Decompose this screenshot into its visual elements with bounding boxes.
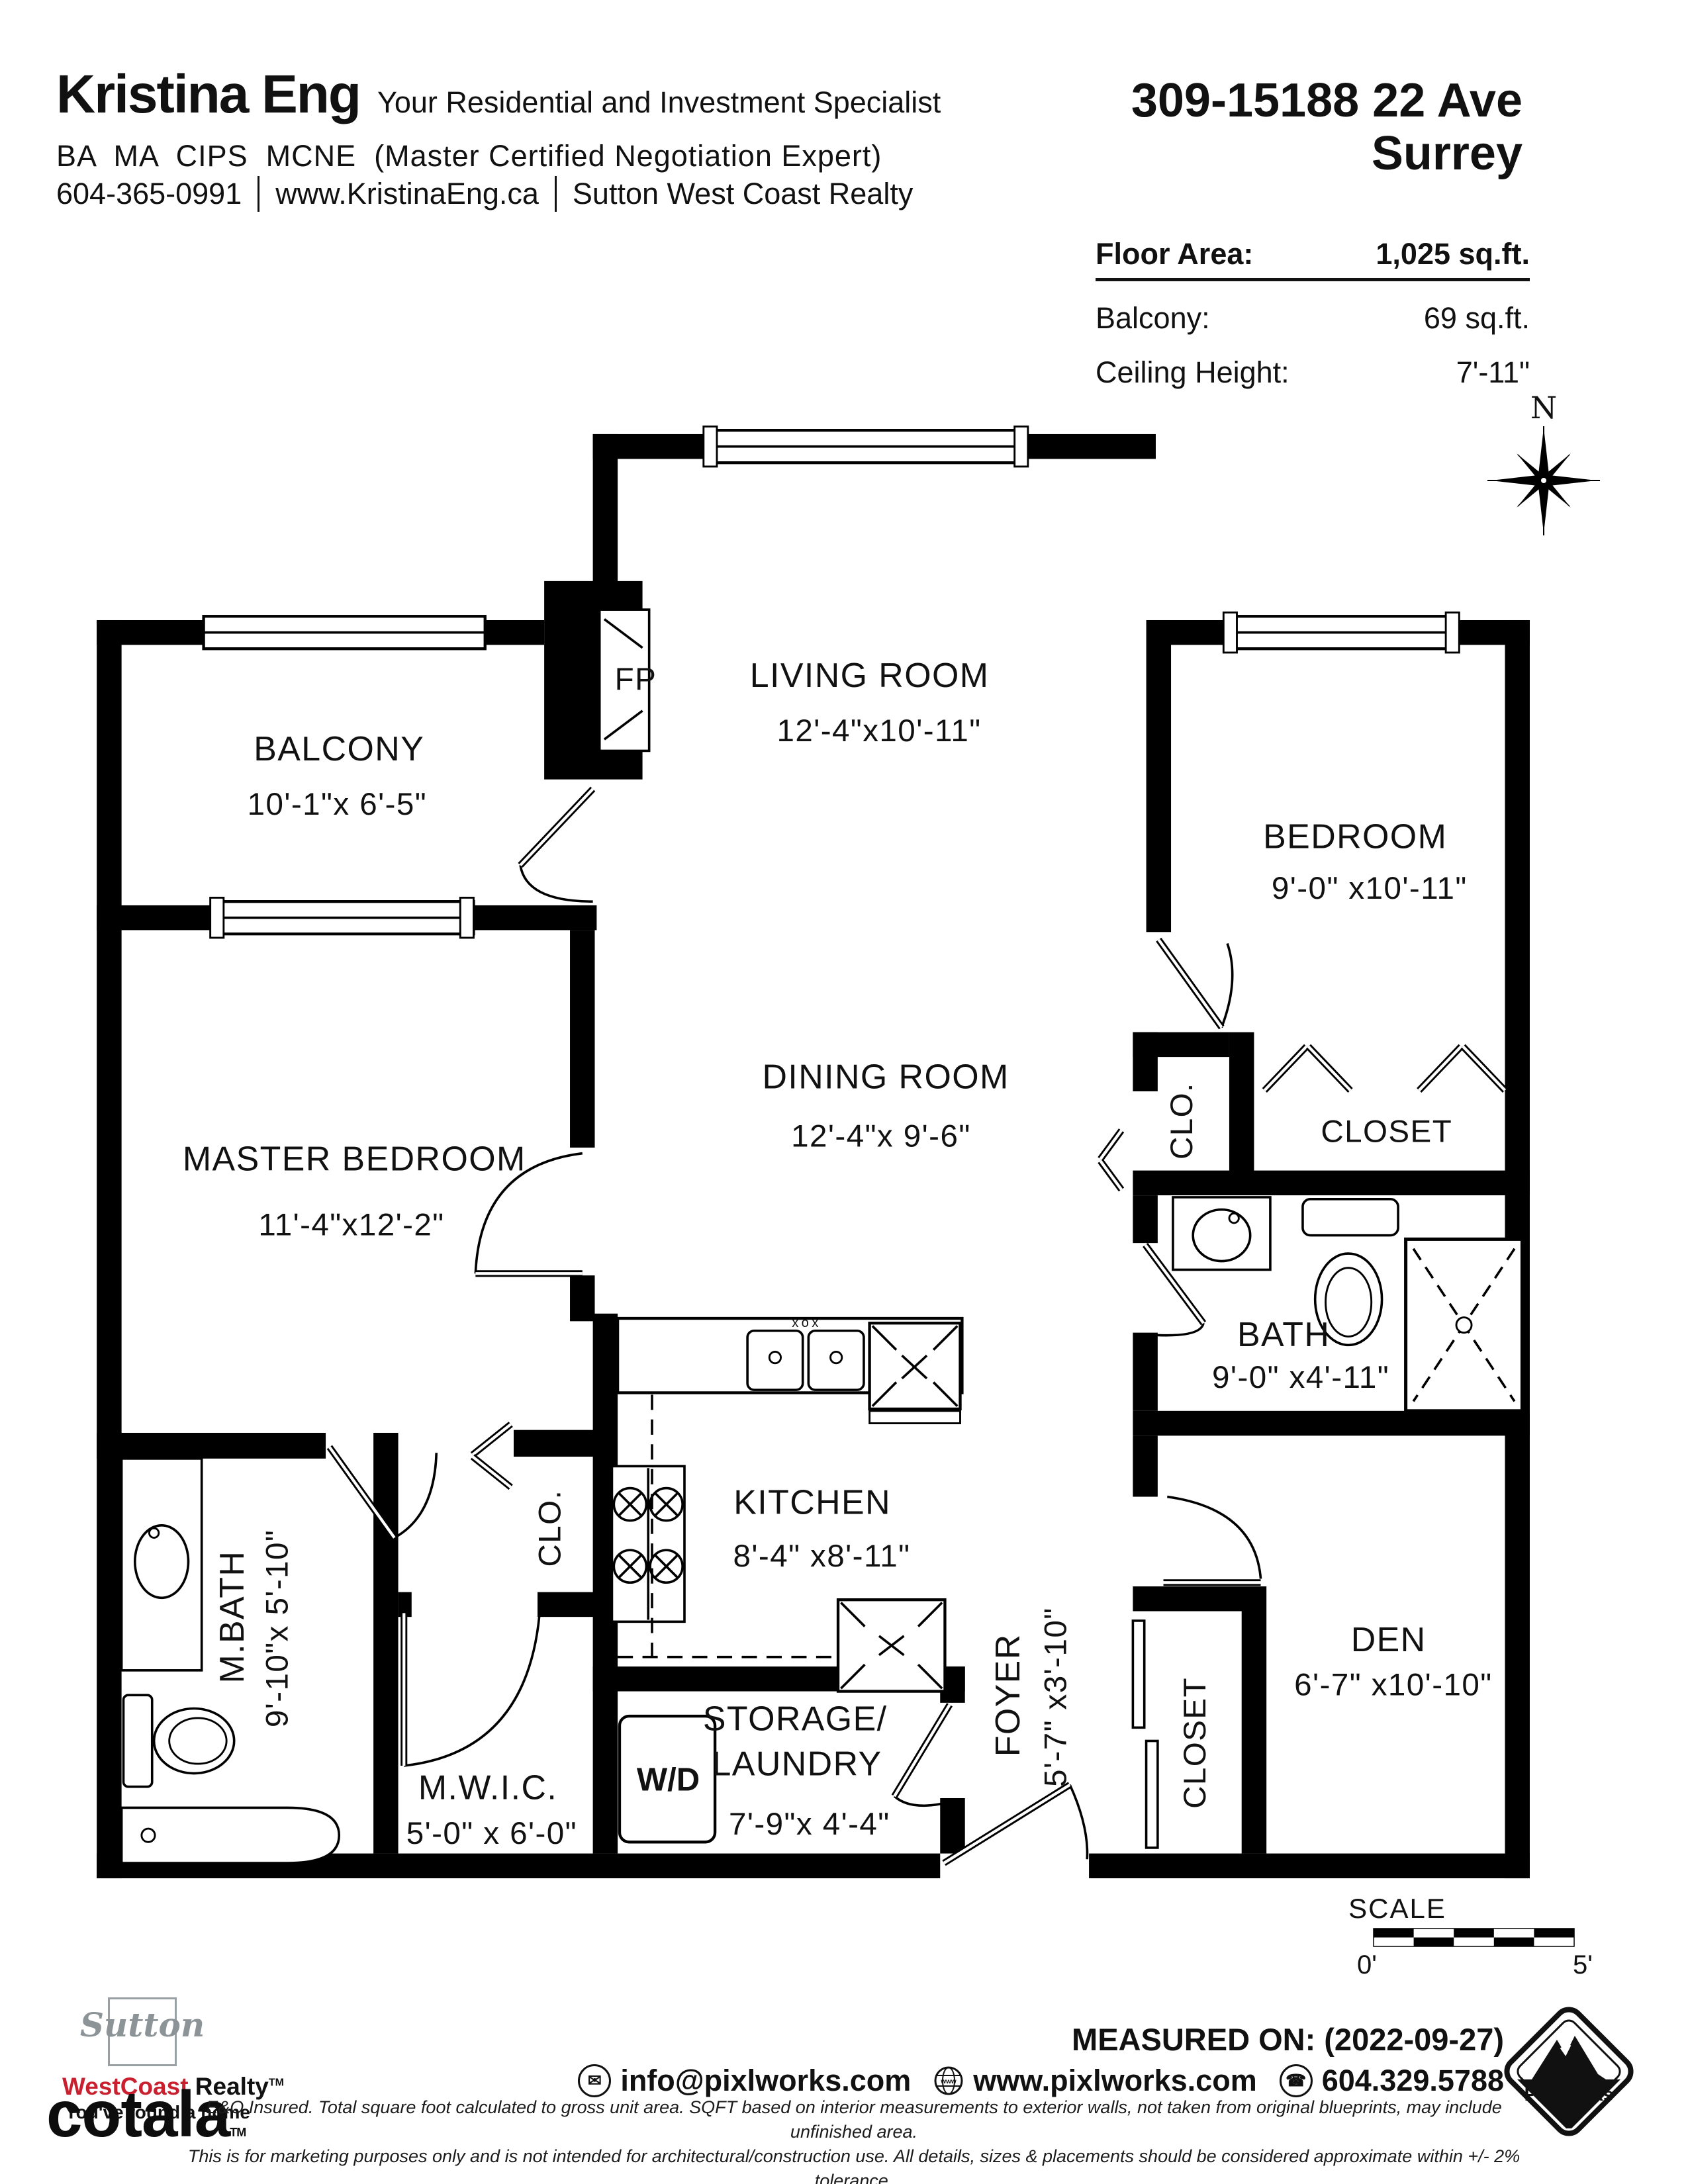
door-den	[1164, 1497, 1261, 1583]
door-entry	[944, 1785, 1087, 1863]
bifold-bedroom-closet-right	[1419, 1046, 1505, 1090]
address-line1: 309-15188 22 Ave	[1039, 74, 1523, 127]
window-living	[704, 426, 1028, 467]
room-dims-foyer: 5'-7" x3'-10"	[1039, 1607, 1074, 1787]
pixlworks-logo-text: PixlWorks	[1524, 2084, 1614, 2105]
agent-brokerage: Sutton West Coast Realty	[573, 177, 913, 211]
room-label-bedroom: BEDROOM	[1263, 817, 1447, 855]
room-dims-bedroom: 9'-0" x10'-11"	[1272, 871, 1468, 906]
disclaimer-line2: This is for marketing purposes only and …	[172, 2144, 1536, 2184]
stat-value: 7'-11"	[1456, 355, 1530, 390]
room-label-bath: BATH	[1237, 1315, 1330, 1353]
room-label-dining-closet: CLO.	[1164, 1082, 1199, 1160]
bifold-bedroom-closet-left	[1264, 1046, 1350, 1090]
door-balcony	[520, 789, 593, 901]
window-bedroom	[1223, 612, 1459, 653]
room-dims-mwic: 5'-0" x 6'-0"	[406, 1816, 577, 1851]
room-label-dining: DINING ROOM	[762, 1058, 1009, 1096]
bifold-hall-closet	[473, 1424, 511, 1487]
contact-phone-text[interactable]: 604.329.5788	[1322, 2064, 1504, 2098]
room-dims-master: 11'-4"x12'-2"	[258, 1208, 444, 1243]
stat-label: Ceiling Height:	[1096, 355, 1289, 390]
room-label-foyer-closet: CLOSET	[1178, 1677, 1213, 1809]
room-label-mwic: M.W.I.C.	[418, 1768, 557, 1806]
measured-on: MEASURED ON: (2022-09-27)	[1046, 2021, 1504, 2058]
contact-phone[interactable]: ☎ 604.329.5788	[1280, 2064, 1504, 2098]
room-label-mbath: M.BATH	[212, 1551, 251, 1684]
burner	[614, 1488, 646, 1521]
room-label-den: DEN	[1351, 1620, 1427, 1659]
burner	[614, 1550, 646, 1582]
room-label-living: LIVING ROOM	[750, 656, 990, 694]
room-label-bedroom-closet: CLOSET	[1321, 1114, 1452, 1149]
room-label-balcony: BALCONY	[254, 729, 424, 768]
room-dims-bath: 9'-0" x4'-11"	[1212, 1360, 1389, 1395]
fridge	[870, 1323, 961, 1423]
mbath-toilet	[124, 1695, 234, 1786]
email-icon: ✉	[578, 2064, 611, 2097]
bath-shower	[1406, 1239, 1523, 1410]
stat-value: 69 sq.ft.	[1424, 301, 1530, 336]
room-dims-mbath: 9'-10"x 5'-10"	[259, 1529, 295, 1727]
contact-email[interactable]: ✉ info@pixlworks.com	[578, 2064, 911, 2098]
disclaimer-line1: E&O Insured. Total square foot calculate…	[172, 2095, 1536, 2144]
room-dims-balcony: 10'-1"x 6'-5"	[248, 787, 428, 822]
divider-bar	[258, 176, 259, 212]
phone-icon: ☎	[1280, 2064, 1313, 2097]
agent-tagline: Your Residential and Investment Speciali…	[377, 85, 941, 120]
bifold-dining-closet	[1100, 1130, 1121, 1189]
agent-phone: 604-365-0991	[56, 177, 242, 211]
scale-bar: SCALE 0' 5'	[1314, 1890, 1605, 1983]
scale-title: SCALE	[1348, 1893, 1446, 1924]
room-label-master: MASTER BEDROOM	[183, 1140, 526, 1178]
header-agent: Kristina Eng Your Residential and Invest…	[56, 64, 941, 126]
agent-credentials: BA MA CIPS MCNE (Master Certified Negoti…	[56, 139, 882, 173]
door-mwic	[404, 1613, 539, 1766]
listing-address: 309-15188 22 Ave Surrey	[1039, 74, 1523, 180]
address-line2: Surrey	[1039, 127, 1523, 180]
room-dims-kitchen: 8'-4" x8'-11"	[733, 1539, 911, 1574]
sutton-tm: TM	[269, 2077, 284, 2089]
agent-contact-row: 604-365-0991 www.KristinaEng.ca Sutton W…	[56, 176, 913, 212]
pixlworks-logo-stars: ★ ★ ★	[1554, 2109, 1583, 2120]
washer-dryer-label: W/D	[637, 1762, 700, 1797]
pixlworks-contact-row: ✉ info@pixlworks.com www www.pixlworks.c…	[655, 2064, 1504, 2098]
pixlworks-logo: PixlWorks ★ ★ ★	[1497, 2000, 1640, 2143]
room-label-storage-1: STORAGE/	[703, 1700, 888, 1738]
floor-plan-page: Kristina Eng Your Residential and Invest…	[0, 0, 1688, 2184]
contact-website[interactable]: www www.pixlworks.com	[933, 2064, 1256, 2098]
scale-end: 5'	[1573, 1950, 1593, 1979]
fireplace-label: FP	[615, 662, 657, 697]
listing-stats: Floor Area: 1,025 sq.ft. Balcony: 69 sq.…	[1096, 237, 1530, 390]
sliding-doors-foyer-closet	[1133, 1621, 1157, 1848]
stat-value: 1,025 sq.ft.	[1376, 237, 1530, 271]
room-dims-living: 12'-4"x10'-11"	[776, 713, 981, 749]
floor-plan-drawing: LIVING ROOM 12'-4"x10'-11" BALCONY 10'-1…	[79, 417, 1549, 1895]
door-storage	[894, 1705, 950, 1806]
contact-website-text[interactable]: www.pixlworks.com	[973, 2064, 1256, 2098]
room-dims-dining: 12'-4"x 9'-6"	[791, 1119, 971, 1154]
pantry	[838, 1600, 945, 1691]
contact-email-text[interactable]: info@pixlworks.com	[620, 2064, 911, 2098]
mbath-tub	[122, 1807, 340, 1863]
room-dims-storage: 7'-9"x 4'-4"	[729, 1807, 890, 1842]
burner	[650, 1550, 682, 1582]
globe-icon: www	[933, 2066, 964, 2096]
agent-website[interactable]: www.KristinaEng.ca	[275, 177, 539, 211]
agent-name: Kristina Eng	[56, 64, 360, 126]
room-label-storage-2: LAUNDRY	[712, 1744, 882, 1782]
burner	[650, 1488, 682, 1521]
stat-ceiling: Ceiling Height: 7'-11"	[1096, 355, 1530, 390]
window-balcony-rail	[204, 616, 485, 649]
stat-balcony: Balcony: 69 sq.ft.	[1096, 301, 1530, 336]
sink-faucet-mark: xox	[792, 1316, 821, 1330]
stat-label: Floor Area:	[1096, 237, 1253, 271]
room-label-hall-closet: CLO.	[533, 1490, 568, 1567]
room-label-foyer: FOYER	[988, 1633, 1027, 1756]
sutton-logo-text: Sutton	[79, 2005, 205, 2044]
stove	[612, 1466, 684, 1621]
stat-label: Balcony:	[1096, 301, 1210, 336]
scale-start: 0'	[1357, 1950, 1377, 1979]
stat-floor-area: Floor Area: 1,025 sq.ft.	[1096, 237, 1530, 281]
door-bedroom	[1158, 940, 1232, 1028]
divider-bar	[555, 176, 557, 212]
svg-text:www: www	[941, 2078, 957, 2085]
room-dims-den: 6'-7" x10'-10"	[1294, 1667, 1492, 1702]
disclaimer: E&O Insured. Total square foot calculate…	[172, 2095, 1536, 2184]
room-label-kitchen: KITCHEN	[733, 1482, 891, 1521]
window-master	[211, 897, 474, 938]
